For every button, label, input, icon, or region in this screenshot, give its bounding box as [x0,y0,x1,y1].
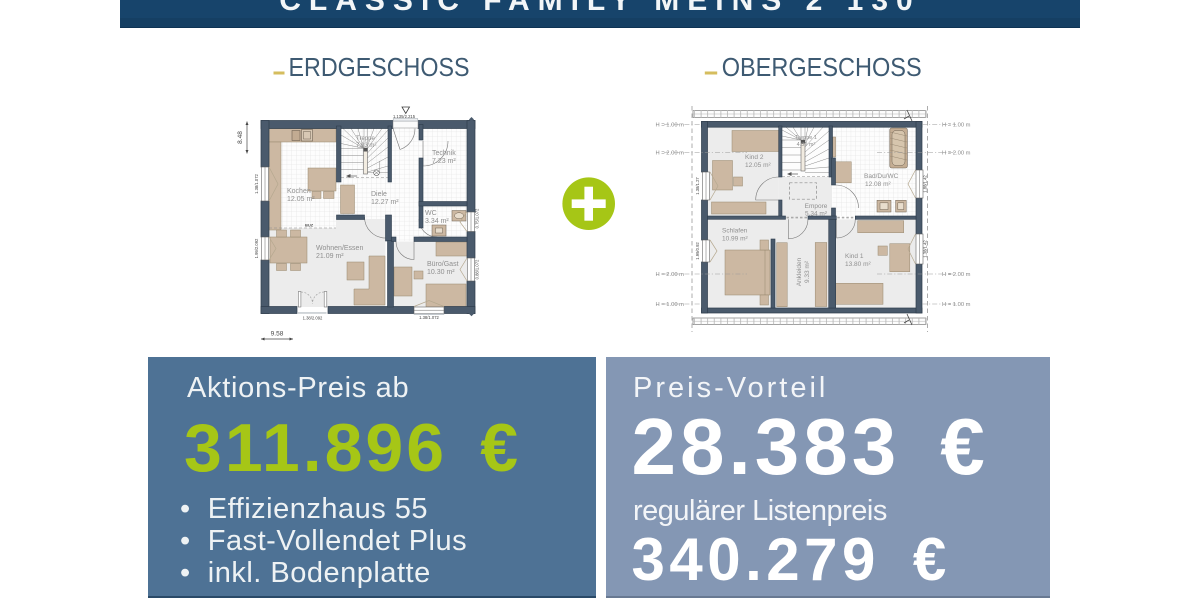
svg-text:13.80 m²: 13.80 m² [845,261,871,268]
svg-text:Schlafen: Schlafen [722,228,748,235]
svg-text:5.34 m²: 5.34 m² [805,211,828,218]
svg-text:12.08 m²: 12.08 m² [865,181,891,188]
svg-text:1.135/2.215: 1.135/2.215 [393,114,416,119]
svg-text:1.99/2.092: 1.99/2.092 [254,238,259,258]
svg-text:21.09 m²: 21.09 m² [316,253,344,260]
svg-text:1.38/1.27: 1.38/1.27 [695,177,700,195]
svg-text:H = 1.00 m: H = 1.00 m [655,302,684,308]
svg-text:Treppe: Treppe [356,136,375,142]
svg-text:1.38/1.42: 1.38/1.42 [923,240,928,258]
svg-text:Empore: Empore [805,203,828,210]
svg-text:10.99 m²: 10.99 m² [722,236,748,243]
svg-text:H = 1.00 m: H = 1.00 m [942,123,971,129]
svg-text:Büro/Gast: Büro/Gast [427,261,459,268]
svg-text:7.23 m²: 7.23 m² [432,158,456,165]
svg-text:7.93 m²: 7.93 m² [356,143,376,149]
svg-text:12.27 m²: 12.27 m² [371,199,399,206]
svg-text:10.30 m²: 10.30 m² [427,269,455,276]
svg-text:H = 1.00 m: H = 1.00 m [942,302,971,308]
svg-text:0.75/1.072: 0.75/1.072 [475,208,480,228]
svg-text:0.88/1.072: 0.88/1.072 [475,259,480,279]
svg-text:1.88/1.42: 1.88/1.42 [923,175,928,193]
svg-text:Kind 1: Kind 1 [845,253,864,260]
svg-text:H = 2.00 m: H = 2.00 m [942,151,971,157]
svg-text:Technik: Technik [432,150,456,157]
svg-text:1.99/0.92: 1.99/0.92 [695,242,700,260]
svg-text:Bad/Du/WC: Bad/Du/WC [864,173,899,180]
svg-text:1.38/1.072: 1.38/1.072 [419,315,439,320]
svg-text:1.38/1.072: 1.38/1.072 [254,173,259,193]
svg-text:Kochen: Kochen [287,188,311,195]
svg-text:1.38/2.092: 1.38/2.092 [303,315,323,320]
svg-text:H = 1.00 m: H = 1.00 m [655,123,684,129]
svg-text:H = 2.00 m: H = 2.00 m [942,272,971,278]
svg-text:Wohnen/Essen: Wohnen/Essen [316,245,363,252]
svg-text:OBERGESCHOSS: OBERGESCHOSS [722,52,922,82]
svg-text:ERDGESCHOSS: ERDGESCHOSS [289,52,470,82]
svg-text:Ankleiden: Ankleiden [796,257,803,286]
svg-text:Kind 2: Kind 2 [745,154,764,161]
svg-text:WC: WC [425,210,437,217]
svg-text:12.05 m²: 12.05 m² [745,162,771,169]
svg-text:9.58: 9.58 [271,331,284,338]
svg-text:12.05 m²: 12.05 m² [287,196,315,203]
svg-text:H = 2.00 m: H = 2.00 m [655,272,684,278]
svg-text:9.33 m²: 9.33 m² [804,260,811,283]
svg-text:4.39 m²: 4.39 m² [797,142,816,148]
svg-text:BUZ: BUZ [305,223,314,228]
svg-text:8.48: 8.48 [237,131,244,144]
svg-text:Diele: Diele [371,191,387,198]
svg-text:H = 2.00 m: H = 2.00 m [655,151,684,157]
svg-text:Treppe 1: Treppe 1 [795,135,817,141]
svg-text:3.34 m²: 3.34 m² [425,218,449,225]
